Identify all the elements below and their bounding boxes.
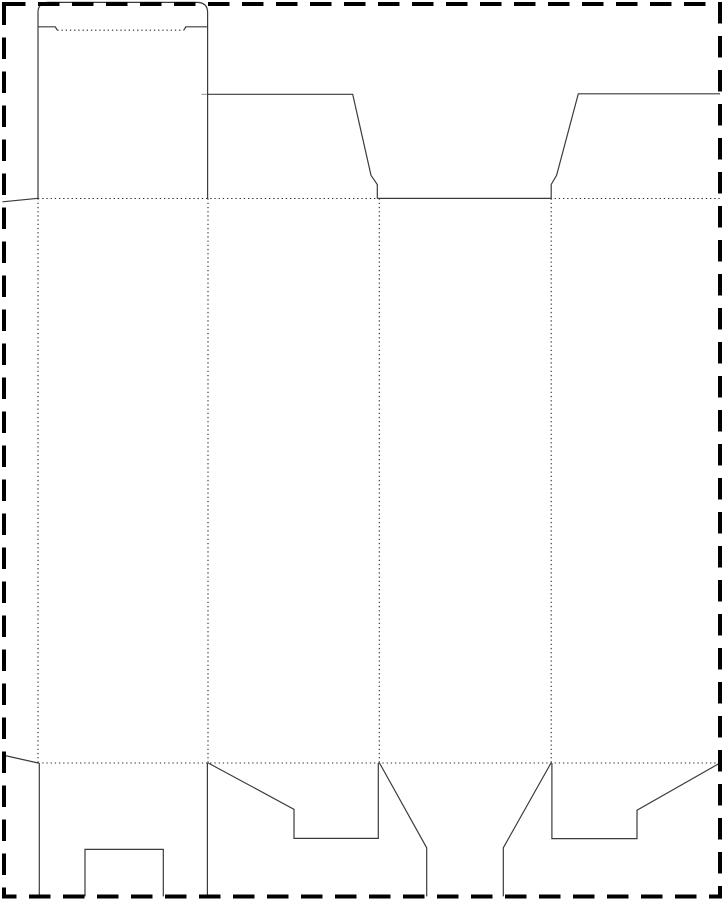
cut-left-dust-flap-outline (208, 94, 377, 198)
cut-bottom-flap3-left-edge (380, 763, 427, 896)
cut-tuck-flap-outline (38, 2, 208, 198)
cut-tuck-flap-right-shoulder (184, 27, 208, 30)
cut-bottom-flap4-outline (552, 763, 720, 839)
dieline-drawing (0, 0, 724, 900)
cut-glue-flap-bottom-edge (3, 755, 39, 763)
cut-bottom-flap1-lock-notch (85, 849, 163, 896)
cut-right-dust-flap-outline (551, 94, 720, 199)
cut-bottom-flap2-outline (208, 763, 378, 838)
print-page (0, 0, 724, 900)
cut-glue-flap-top-edge (3, 198, 39, 202)
cut-bottom-flap3-right-edge (503, 763, 551, 896)
cut-tuck-flap-left-shoulder (38, 27, 57, 30)
